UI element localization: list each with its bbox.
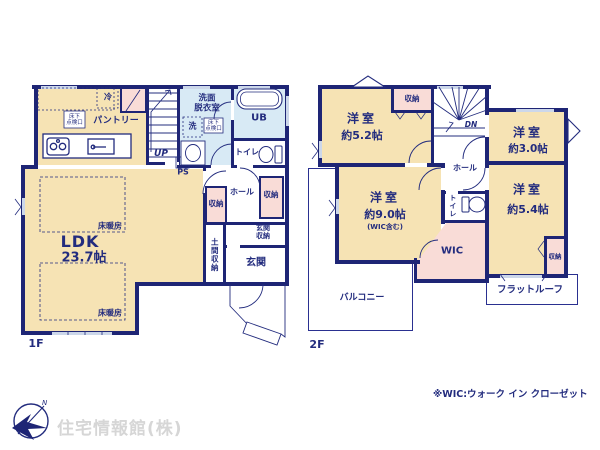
- toilet-icon-1f: [259, 146, 282, 163]
- balcony-label: バルコニー: [340, 293, 385, 303]
- pantry-label: パントリー: [93, 116, 138, 126]
- door-arc: [239, 284, 263, 308]
- washer-label: 洗: [189, 123, 197, 132]
- washroom-label: 洗面 脱衣室: [194, 94, 220, 113]
- hall-label-1f: ホール: [230, 189, 254, 198]
- floor-label-1f: 1F: [28, 338, 43, 350]
- underfloor-access-label: 床下 点検口: [66, 113, 83, 125]
- gable-vent-right: [568, 119, 580, 143]
- closet-fold-marks: [538, 241, 544, 257]
- room-note-bedroom90: (WIC含む): [367, 224, 403, 232]
- window-chevron: [15, 199, 21, 215]
- kitchen-cabinet-dashed: [38, 88, 114, 110]
- entrance-storage-line1: 玄関: [256, 224, 270, 232]
- door-arc: [409, 141, 431, 163]
- pantry-door-line: [126, 90, 140, 111]
- stairs-down-label: DN: [465, 121, 478, 129]
- washroom-line2: 脱衣室: [194, 103, 220, 113]
- entrance-label: 玄関: [246, 257, 266, 268]
- fridge-label: 冷: [104, 94, 112, 103]
- compass-north-label: N: [42, 399, 47, 407]
- closet-fold-marks: [395, 112, 426, 119]
- room-label-bedroom54: 洋室: [513, 183, 543, 196]
- wic-label: WIC: [441, 245, 463, 256]
- floor-heating-label: 床暖房: [98, 310, 122, 319]
- window-ticks: [68, 274, 547, 335]
- room-label-bedroom52: 洋室: [347, 112, 377, 125]
- floorplan-canvas: LDK 23.7帖 床暖房 床暖房 冷 パントリー 床下 点検口 床下 点検口 …: [0, 0, 600, 450]
- stairs-up-1f: [149, 90, 177, 157]
- closet-label: 収納: [405, 95, 420, 103]
- underfloor-access-line2: 点検口: [66, 120, 83, 126]
- door-arc: [240, 168, 260, 188]
- washroom-line1: 洗面: [198, 93, 215, 103]
- bath-label: UB: [251, 112, 267, 123]
- kitchen-counter: [43, 134, 131, 158]
- door-arc: [420, 240, 438, 258]
- stairs-up-label: UP: [154, 149, 168, 159]
- room-label-bedroom30: 洋室: [513, 126, 543, 139]
- floor-label-2f: 2F: [309, 339, 324, 351]
- floor-heating-label: 床暖房: [98, 223, 122, 232]
- room-size-bedroom54: 約5.4帖: [507, 204, 549, 216]
- window-chevron: [312, 143, 318, 159]
- underfloor-access-label: 床下 点検口: [205, 119, 222, 131]
- door-arc: [463, 137, 485, 159]
- closet-label: 収納: [209, 200, 224, 208]
- stairs-down-2f: [433, 87, 487, 136]
- toilet-label-1f: トイレ: [235, 149, 259, 158]
- room-label-ldk: LDK: [61, 233, 100, 251]
- door-arc: [419, 168, 441, 190]
- entrance-storage-line2: 収納: [256, 232, 270, 240]
- floorplan-lineart: [0, 0, 600, 450]
- room-label-bedroom90: 洋室: [370, 191, 400, 204]
- room-size-ldk: 23.7帖: [61, 252, 106, 267]
- hall-label-2f: ホール: [453, 165, 477, 174]
- room-size-bedroom30: 約3.0帖: [508, 144, 548, 156]
- entrance-porch: [230, 284, 285, 345]
- underfloor-access-line2: 点検口: [205, 126, 222, 132]
- room-size-bedroom52: 約5.2帖: [341, 130, 383, 142]
- entrance-storage-label: 玄関 収納: [256, 225, 270, 241]
- closet-label: 収納: [264, 191, 279, 199]
- toilet-icon-2f: [462, 197, 485, 212]
- room-size-bedroom90: 約9.0帖: [364, 209, 406, 221]
- gable-vent-top: [352, 76, 385, 87]
- compass-logo: [12, 404, 48, 440]
- door-arc: [203, 171, 226, 194]
- closet-label: 収納: [549, 253, 562, 260]
- wic-note: ※WIC:ウォーク イン クローゼット: [433, 386, 588, 400]
- washbasin-icon: [181, 141, 205, 165]
- bathtub-icon: [237, 89, 282, 109]
- flat-roof-label: フラットルーフ: [497, 286, 563, 297]
- toilet-label-2f: トイレ: [448, 194, 456, 218]
- company-logo-text: 住宅情報館(株): [57, 414, 183, 439]
- ps-label: PS: [177, 169, 189, 178]
- doma-storage-label: 土間収納: [210, 238, 218, 272]
- door-arc: [211, 144, 232, 165]
- window-chevron: [329, 200, 335, 216]
